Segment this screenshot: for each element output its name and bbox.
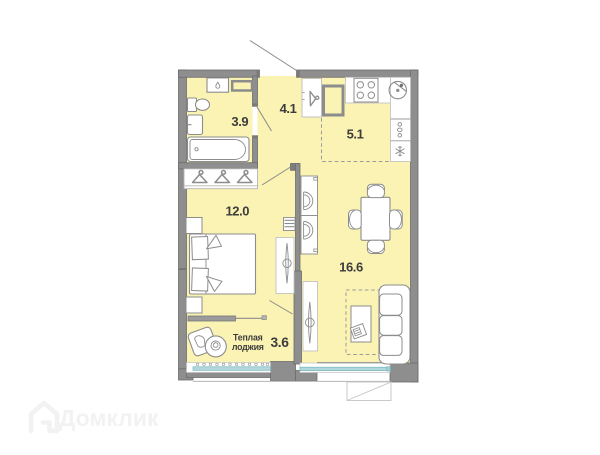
svg-text:Теплая: Теплая (233, 332, 263, 342)
svg-text:12.0: 12.0 (225, 204, 249, 219)
svg-text:3.9: 3.9 (231, 114, 248, 129)
svg-text:16.6: 16.6 (339, 260, 363, 275)
svg-text:4.1: 4.1 (280, 101, 297, 116)
svg-text:3.6: 3.6 (271, 335, 290, 350)
svg-text:Домклик: Домклик (59, 405, 159, 431)
svg-text:лоджия: лоджия (232, 342, 264, 352)
svg-text:5.1: 5.1 (347, 127, 364, 142)
